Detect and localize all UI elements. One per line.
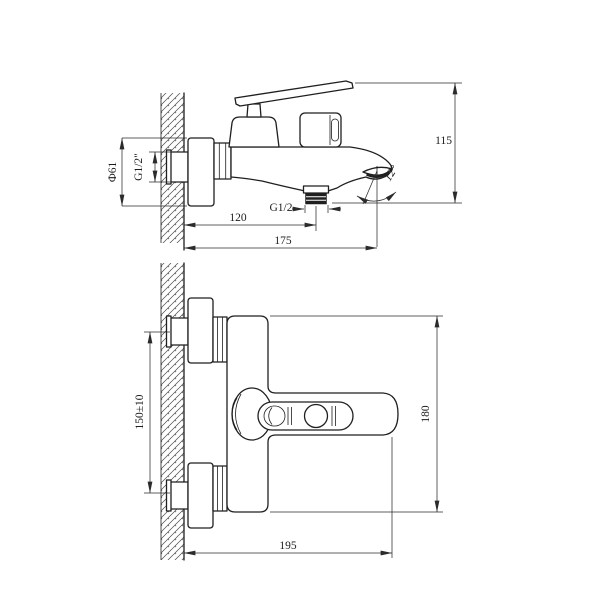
dim-wall-to-outlet: 120	[184, 206, 316, 231]
plan-view: 150±10 180 195	[134, 263, 443, 560]
dim-label-wall-to-outlet: 120	[229, 212, 247, 224]
dim-label-outlet-thread: G1/2	[270, 202, 293, 214]
dim-wall-to-spout-tip: 175	[184, 235, 377, 248]
shower-outlet-thread	[304, 186, 329, 204]
faucet-technical-drawing: Ф61 G1/2" 115 12° G1/2 120	[0, 0, 600, 600]
dim-label-wall-projection: 195	[279, 540, 297, 552]
side-view: Ф61 G1/2" 115 12° G1/2 120	[107, 81, 462, 250]
wall-section-plan	[161, 263, 184, 560]
diverter-knob	[300, 113, 341, 147]
dim-label-wall-to-spout-tip: 175	[274, 235, 292, 247]
faucet-body-side	[231, 147, 392, 204]
dim-label-inlet-spacing: 150±10	[134, 394, 146, 429]
dim-label-body-width: 180	[420, 405, 432, 423]
dim-overall-height: 115	[332, 83, 462, 203]
technical-drawing-page: Ф61 G1/2" 115 12° G1/2 120	[0, 0, 600, 600]
dim-label-escutcheon-diameter: Ф61	[107, 161, 119, 182]
dim-label-inlet-thread: G1/2"	[133, 153, 145, 181]
dim-label-overall-height: 115	[435, 135, 452, 147]
